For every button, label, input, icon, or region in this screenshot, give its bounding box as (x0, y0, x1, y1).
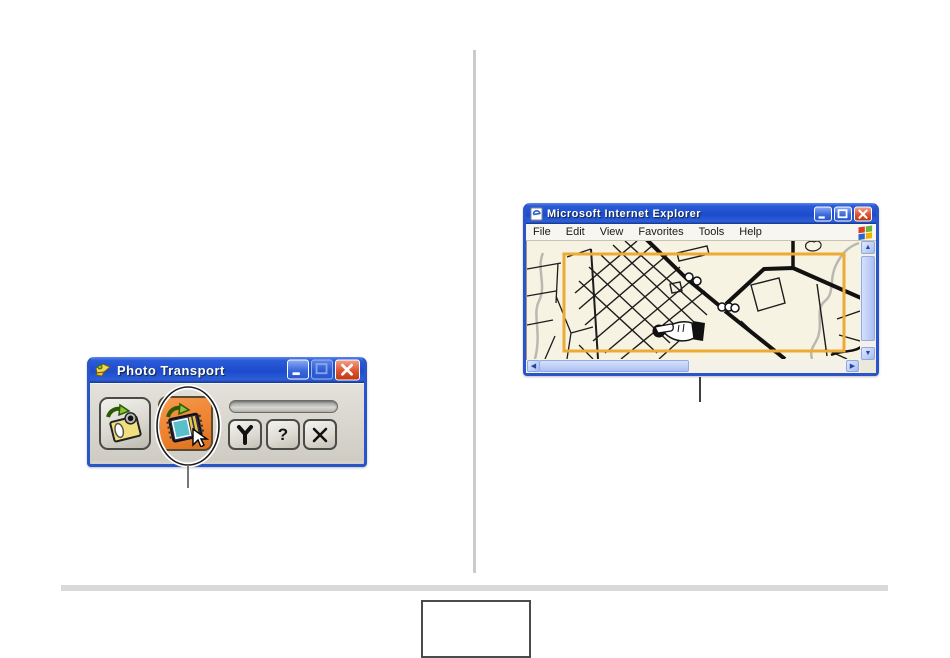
wrench-icon (235, 424, 255, 446)
x-icon (311, 426, 329, 444)
question-icon: ? (278, 425, 288, 445)
menu-tools[interactable]: Tools (699, 226, 725, 238)
column-divider (473, 50, 476, 573)
close-icon (336, 361, 359, 380)
windows-flag-logo (858, 225, 873, 240)
maximize-button[interactable] (834, 206, 852, 221)
photo-transport-app-icon (94, 362, 112, 378)
minimize-button[interactable] (814, 206, 832, 221)
progress-bar (229, 400, 338, 413)
ie-menubar: File Edit View Favorites Tools Help (526, 224, 876, 241)
photo-album-arrow-icon (163, 401, 209, 447)
window-title: Microsoft Internet Explorer (547, 208, 701, 220)
arrow-left-icon: ◀ (531, 363, 536, 370)
ie-titlebar[interactable]: Microsoft Internet Explorer (526, 203, 876, 224)
close-button[interactable] (335, 360, 360, 381)
minimize-button[interactable] (287, 360, 309, 380)
maximize-icon (312, 361, 332, 379)
menu-view[interactable]: View (600, 226, 624, 238)
menu-file[interactable]: File (533, 226, 551, 238)
help-button[interactable]: ? (266, 419, 300, 450)
scroll-up-button[interactable]: ▲ (861, 241, 875, 254)
camera-photo-arrow-icon (104, 403, 146, 445)
ie-page-icon (530, 207, 543, 221)
minimize-icon (815, 207, 831, 220)
horizontal-scrollbar[interactable]: ◀ ▶ (526, 360, 876, 373)
scroll-right-button[interactable]: ▶ (846, 360, 859, 372)
arrow-right-icon: ▶ (850, 363, 855, 370)
map-content (526, 241, 860, 360)
vertical-scroll-thumb[interactable] (861, 256, 875, 341)
album-button[interactable] (158, 396, 213, 451)
menu-help[interactable]: Help (739, 226, 762, 238)
window-title: Photo Transport (117, 363, 225, 378)
menu-favorites[interactable]: Favorites (638, 226, 683, 238)
maximize-button[interactable] (311, 360, 333, 380)
photo-transport-toolbar: ? (90, 383, 364, 461)
street-map-drawing (527, 241, 860, 359)
close-button[interactable] (854, 206, 872, 221)
photo-transport-titlebar[interactable]: Photo Transport (90, 357, 364, 383)
footer-rule (61, 585, 888, 591)
ie-window: Microsoft Internet Explorer File Edit Vi… (523, 203, 879, 376)
arrow-down-icon: ▼ (865, 350, 872, 357)
close-icon (855, 207, 871, 220)
ie-callout-line (699, 377, 701, 402)
settings-button[interactable] (228, 419, 262, 450)
scroll-down-button[interactable]: ▼ (861, 347, 875, 360)
arrow-up-icon: ▲ (865, 244, 872, 251)
minimize-icon (288, 361, 308, 379)
horizontal-scroll-thumb[interactable] (539, 360, 689, 372)
transfer-photos-button[interactable] (99, 397, 151, 450)
page-number-box (421, 600, 531, 658)
menu-edit[interactable]: Edit (566, 226, 585, 238)
photo-transport-window: Photo Transport (87, 357, 367, 467)
exit-button[interactable] (303, 419, 337, 450)
vertical-scrollbar[interactable]: ▲ ▼ (860, 241, 876, 360)
maximize-icon (835, 207, 851, 220)
